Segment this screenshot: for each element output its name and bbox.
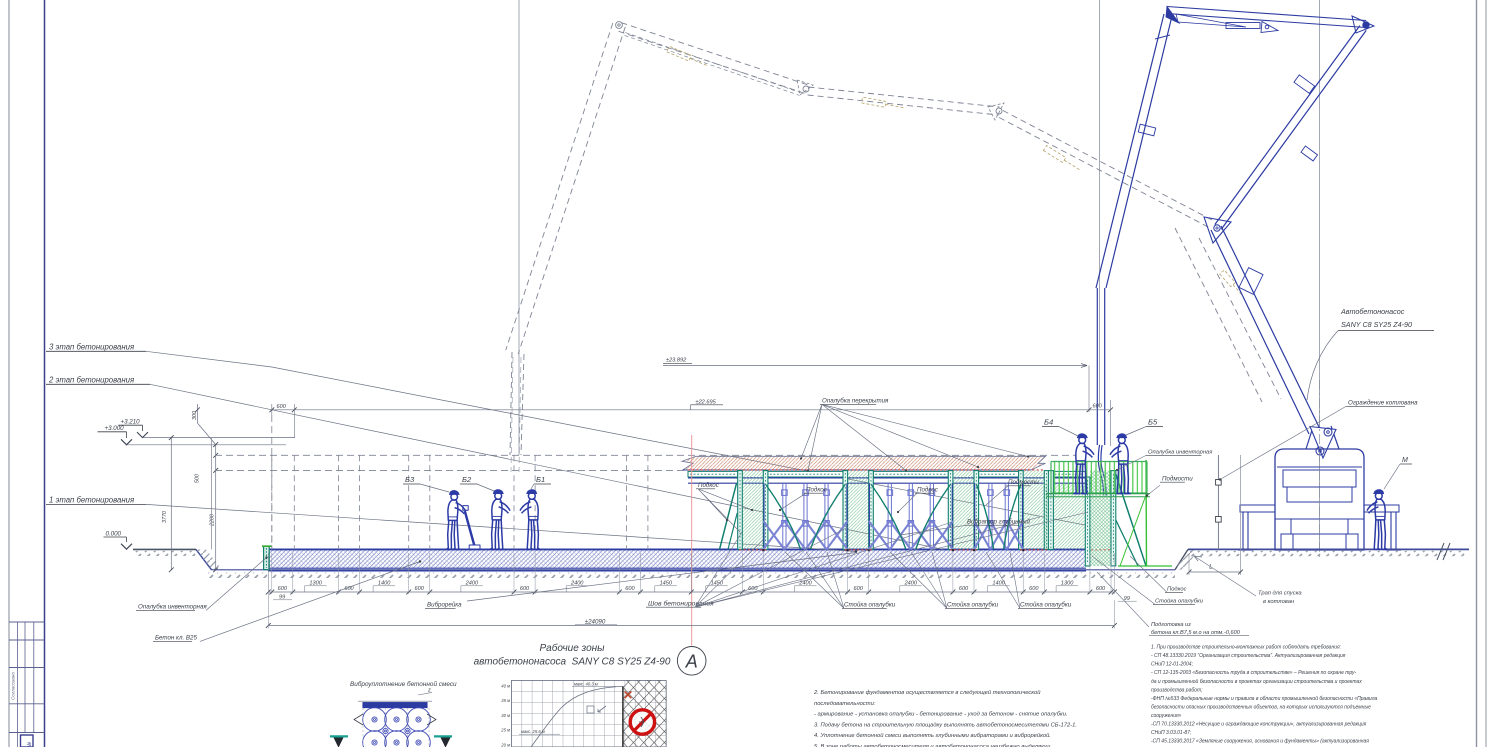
svg-text:600: 600 — [277, 404, 287, 410]
svg-text:Подкос: Подкос — [1167, 587, 1187, 593]
svg-text:Рабочие зоны: Рабочие зоны — [539, 642, 605, 654]
svg-text:бетона кл.В7,5 м.о на отм.-0,6: бетона кл.В7,5 м.о на отм.-0,600 — [1151, 630, 1241, 636]
svg-text:1. При производстве строительн: 1. При производстве строительно-монтажны… — [1151, 645, 1342, 651]
svg-text:25 м: 25 м — [500, 728, 510, 733]
svg-text:- СП 12-135-2003 «Безопасность: - СП 12-135-2003 «Безопасность труда в с… — [1151, 670, 1356, 676]
svg-text:СНиП 3.03.01-87;: СНиП 3.03.01-87; — [1151, 730, 1192, 736]
svg-text:Опалубка перекрытия: Опалубка перекрытия — [822, 398, 889, 405]
svg-text:сооружения»: сооружения» — [1151, 713, 1182, 719]
svg-text:Подмости: Подмости — [1162, 475, 1193, 482]
svg-text:2 этап бетонирования: 2 этап бетонирования — [48, 375, 135, 384]
svg-text:2. Бетонирование фундаментов о: 2. Бетонирование фундаментов осуществляе… — [813, 689, 1041, 696]
svg-text:3 этап бетонирования: 3 этап бетонирования — [49, 342, 135, 351]
svg-text:Стойка опалубки: Стойка опалубки — [1020, 602, 1072, 609]
svg-text:Виброуплотнение бетонной смеси: Виброуплотнение бетонной смеси — [350, 680, 457, 688]
svg-text:-ФНП №533 Федеральные нормы и: -ФНП №533 Федеральные нормы и правила в … — [1151, 695, 1378, 702]
svg-text:600: 600 — [959, 586, 969, 592]
svg-text:4. Уплотнение бетонной смеси в: 4. Уплотнение бетонной смеси выполнять г… — [814, 732, 1051, 739]
svg-text:Трап для спуска: Трап для спуска — [1258, 590, 1302, 596]
svg-text:2200: 2200 — [210, 514, 216, 527]
svg-text:А: А — [685, 651, 698, 671]
svg-text:Подмости: Подмости — [1008, 479, 1039, 486]
svg-text:600: 600 — [625, 586, 635, 592]
svg-text:500: 500 — [195, 474, 201, 483]
svg-text:Автобетононасос: Автобетононасос — [1340, 307, 1405, 316]
svg-text:40 м: 40 м — [501, 683, 510, 688]
svg-text:600: 600 — [1096, 586, 1106, 592]
svg-text:Б2: Б2 — [462, 475, 472, 484]
svg-text:+3.000: +3.000 — [105, 425, 125, 432]
svg-text:600: 600 — [520, 586, 530, 592]
svg-text:- армирование - установка опал: - армирование - установка опалубки - бет… — [814, 712, 1068, 718]
svg-text:последовательности:: последовательности: — [814, 701, 876, 707]
svg-text:Согласовано: Согласовано — [11, 672, 16, 700]
svg-text:Подкос: Подкос — [698, 482, 720, 489]
svg-text:М: М — [1402, 457, 1408, 464]
svg-text:в котлован: в котлован — [1263, 599, 1295, 605]
svg-text:600: 600 — [1093, 403, 1103, 409]
svg-text:Б5: Б5 — [1148, 418, 1158, 427]
svg-text:Б4: Б4 — [1044, 418, 1053, 427]
svg-text:Стойка опалубки: Стойка опалубки — [1155, 598, 1204, 605]
svg-text:Шов бетонирования: Шов бетонирования — [648, 599, 714, 607]
svg-text:Стойка опалубки: Стойка опалубки — [947, 602, 999, 609]
svg-text:30 м: 30 м — [501, 713, 510, 718]
svg-text:3. Подачу бетона на строительн: 3. Подачу бетона на строительную площадк… — [814, 722, 1077, 728]
svg-text:Ограждение котлована: Ограждение котлована — [1348, 400, 1418, 407]
svg-text:безопасности опасных производс: безопасности опасных производственных об… — [1151, 705, 1371, 711]
svg-text:Опалубка инвенторная: Опалубка инвенторная — [138, 604, 207, 611]
svg-text:Б3: Б3 — [405, 475, 415, 484]
svg-text:Подготовка из: Подготовка из — [1151, 622, 1191, 628]
svg-text:- СП 48.13330.2019 “Организаци: - СП 48.13330.2019 “Организация строител… — [1151, 653, 1346, 659]
svg-text:600: 600 — [854, 586, 864, 592]
svg-text:1 этап бетонирования: 1 этап бетонирования — [49, 495, 135, 504]
svg-text:макс. 40.3 м: макс. 40.3 м — [574, 681, 598, 686]
svg-text:±23.892: ±23.892 — [666, 358, 687, 364]
svg-text:Подкос: Подкос — [806, 486, 828, 493]
svg-text:СНиП 12-01-2004;: СНиП 12-01-2004; — [1151, 662, 1194, 668]
svg-text:SANY C8 SY25 Z4-90: SANY C8 SY25 Z4-90 — [1341, 320, 1412, 329]
svg-text:35 м: 35 м — [501, 698, 510, 703]
svg-text:производства работ;: производства работ; — [1151, 687, 1203, 693]
svg-text:3770: 3770 — [162, 511, 168, 523]
svg-text:-СП 70.13330.2012 «Несущие и о: -СП 70.13330.2012 «Несущие и ограждающие… — [1151, 722, 1367, 728]
svg-text:да и промышленной безопасности: да и промышленной безопасности в проекта… — [1151, 678, 1362, 685]
svg-text:600: 600 — [415, 586, 425, 592]
svg-text:Бетон кл. В25: Бетон кл. В25 — [155, 635, 197, 642]
svg-text:600: 600 — [1029, 586, 1039, 592]
svg-text:Опалубка инвенторная: Опалубка инвенторная — [1148, 450, 1212, 456]
svg-text:Виброрейка: Виброрейка — [427, 602, 462, 609]
svg-text:20 м: 20 м — [500, 743, 510, 747]
svg-text:Подкос: Подкос — [917, 486, 939, 493]
svg-text:макс. 25.6 м: макс. 25.6 м — [521, 729, 545, 734]
svg-text:Стойка опалубки: Стойка опалубки — [844, 602, 896, 609]
svg-text:-СП 45.13330.2017 «Земляные со: -СП 45.13330.2017 «Земляные сооружения, … — [1151, 739, 1369, 745]
svg-text:0.000: 0.000 — [106, 530, 122, 537]
svg-text:300: 300 — [192, 411, 198, 420]
svg-text:автобетононасоса SANY C8 SY25: автобетононасоса SANY C8 SY25 Z4-90 — [474, 656, 671, 668]
svg-text:Б1: Б1 — [536, 475, 545, 484]
svg-text:600: 600 — [278, 586, 288, 592]
svg-text:№: № — [26, 741, 33, 747]
